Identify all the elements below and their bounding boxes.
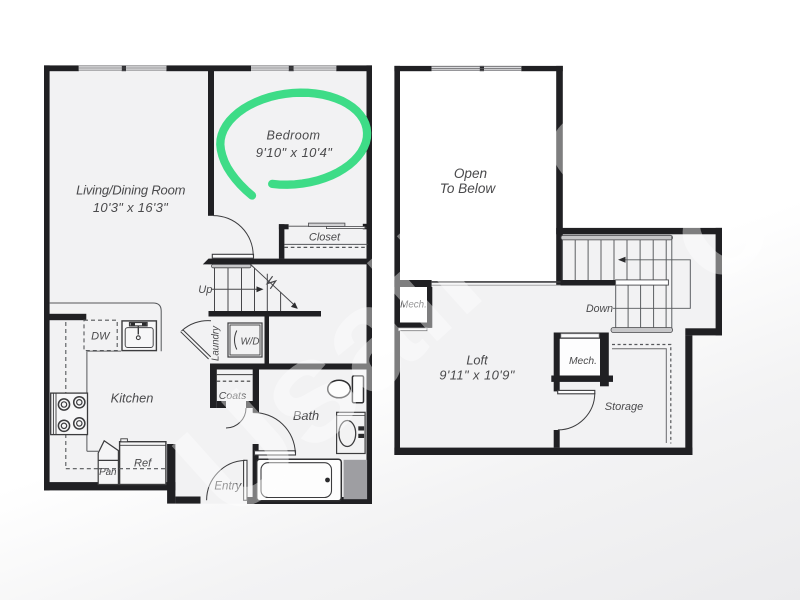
svg-text:Living/Dining Room: Living/Dining Room bbox=[76, 182, 185, 197]
svg-text:Mech.: Mech. bbox=[569, 356, 597, 367]
svg-text:Ref: Ref bbox=[134, 457, 152, 469]
svg-text:10'3" x 16'3": 10'3" x 16'3" bbox=[93, 200, 169, 215]
svg-text:Loft: Loft bbox=[466, 353, 488, 368]
svg-text:Down: Down bbox=[586, 303, 613, 315]
svg-text:Kitchen: Kitchen bbox=[111, 391, 154, 406]
svg-text:Pan: Pan bbox=[99, 467, 116, 478]
svg-text:Laundry: Laundry bbox=[211, 325, 222, 361]
svg-text:9'10" x 10'4": 9'10" x 10'4" bbox=[256, 145, 333, 160]
svg-text:Bedroom: Bedroom bbox=[267, 128, 321, 142]
svg-text:Closet: Closet bbox=[309, 232, 341, 244]
svg-text:Storage: Storage bbox=[605, 401, 644, 413]
svg-text:DW: DW bbox=[91, 331, 111, 343]
svg-text:Up: Up bbox=[198, 284, 212, 296]
